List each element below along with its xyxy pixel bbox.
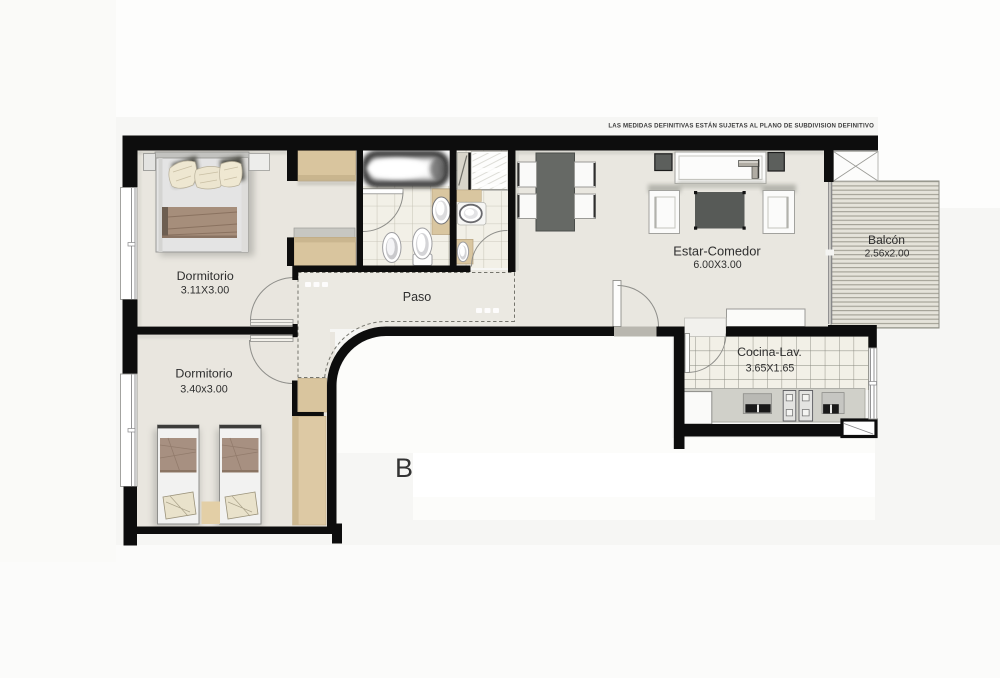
svg-text:Dormitorio: Dormitorio [177,269,234,283]
svg-text:Estar-Comedor: Estar-Comedor [673,244,761,259]
svg-text:LAS MEDIDAS DEFINITIVAS ESTÁN: LAS MEDIDAS DEFINITIVAS ESTÁN SUJETAS AL… [608,123,874,130]
svg-text:Balcón: Balcón [868,233,905,247]
svg-text:3.65X1.65: 3.65X1.65 [746,363,795,375]
svg-text:Cocina-Lav.: Cocina-Lav. [737,345,802,359]
svg-text:2.56x2.00: 2.56x2.00 [865,249,910,260]
svg-text:6.00X3.00: 6.00X3.00 [693,259,741,271]
svg-text:3.40x3.00: 3.40x3.00 [180,384,227,396]
svg-text:3.11X3.00: 3.11X3.00 [181,285,229,297]
svg-text:B: B [395,453,413,483]
svg-text:Paso: Paso [403,290,432,304]
svg-text:Dormitorio: Dormitorio [175,367,232,381]
